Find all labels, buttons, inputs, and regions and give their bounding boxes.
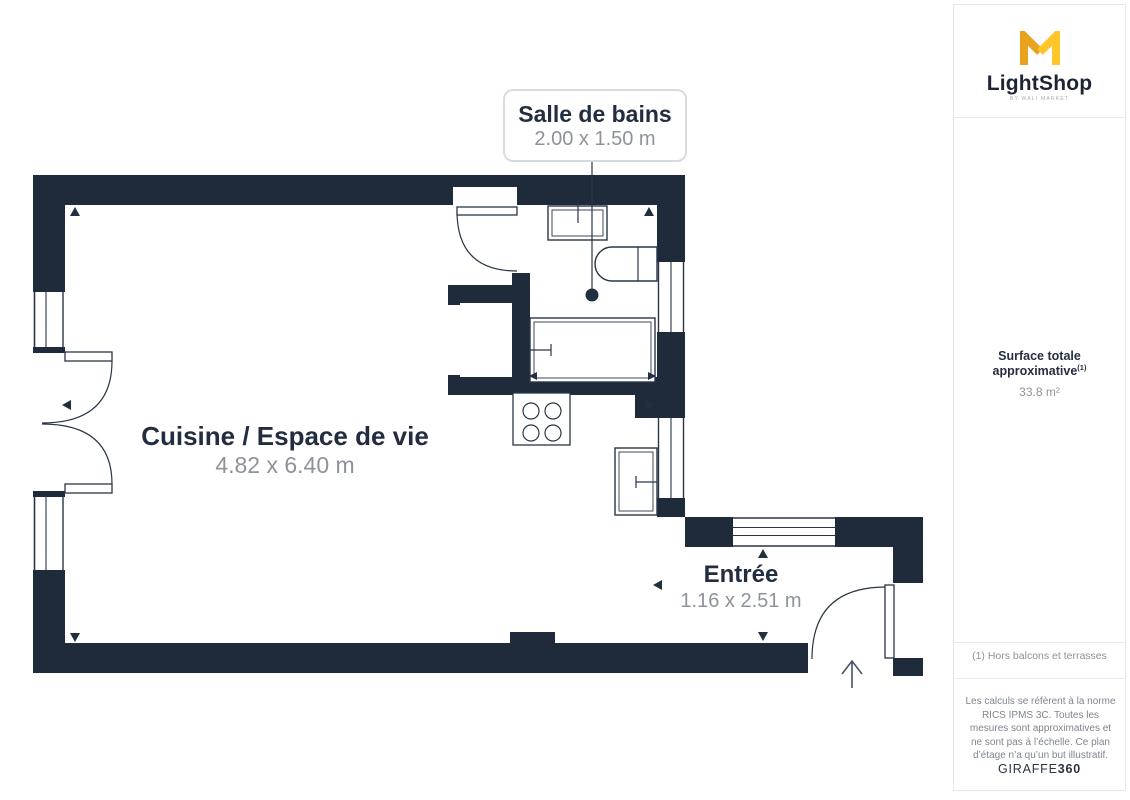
room-callout-salle-de-bains: Salle de bains 2.00 x 1.50 m [503,89,687,162]
shower-tray [530,318,655,382]
floorplan-drawing [0,0,953,800]
stove [513,393,570,445]
disclaimer-text: Les calculs se réfèrent à la norme RICS … [965,695,1116,763]
window-left-lower [33,497,65,570]
info-sidebar: LightShop BY WALI MARKET Surface totale … [953,4,1126,791]
room-name: Salle de bains [518,101,671,127]
lightshop-logo-icon [1019,31,1061,69]
surface-label-text: Surface totale approximative [993,349,1081,378]
bathroom-sink [548,199,607,240]
room-name: Entrée [651,561,831,588]
credit-brand: GIRAFFE [998,762,1058,776]
window-right-lower [657,418,685,498]
brand-tagline: BY WALI MARKET [954,96,1125,102]
kitchen-sink [615,448,657,515]
divider [954,642,1125,643]
room-dimensions: 2.00 x 1.50 m [534,127,655,151]
window-left-upper [33,292,65,347]
toilet [595,247,657,281]
divider [954,678,1125,679]
window-right-upper [657,262,685,332]
french-door-left-lower [42,424,112,493]
entree-threshold-window [733,517,835,547]
divider [954,117,1125,118]
room-dimensions: 4.82 x 6.40 m [115,451,455,479]
room-label-cuisine: Cuisine / Espace de vie 4.82 x 6.40 m [115,421,455,479]
room-dimensions: 1.16 x 2.51 m [651,588,831,615]
room-label-entree: Entrée 1.16 x 2.51 m [651,561,831,615]
surface-label: Surface totale approximative(1) [954,349,1125,378]
credit-suffix: 360 [1058,762,1081,776]
surface-footnote-marker: (1) [1077,363,1086,372]
french-door-left-upper [42,352,112,423]
surface-summary: Surface totale approximative(1) 33.8 m² [954,349,1125,399]
north-arrow-icon [842,661,862,688]
surface-value: 33.8 m² [954,385,1125,399]
bathroom-door [457,207,517,271]
footnote-text: (1) Hors balcons et terrasses [954,650,1125,662]
brand-name: LightShop [954,74,1125,94]
floorplan-page: Salle de bains 2.00 x 1.50 m Cuisine / E… [0,0,1130,800]
brand-logo: LightShop BY WALI MARKET [954,5,1125,117]
giraffe360-credit: GIRAFFE360 [954,762,1125,776]
room-name: Cuisine / Espace de vie [115,421,455,451]
